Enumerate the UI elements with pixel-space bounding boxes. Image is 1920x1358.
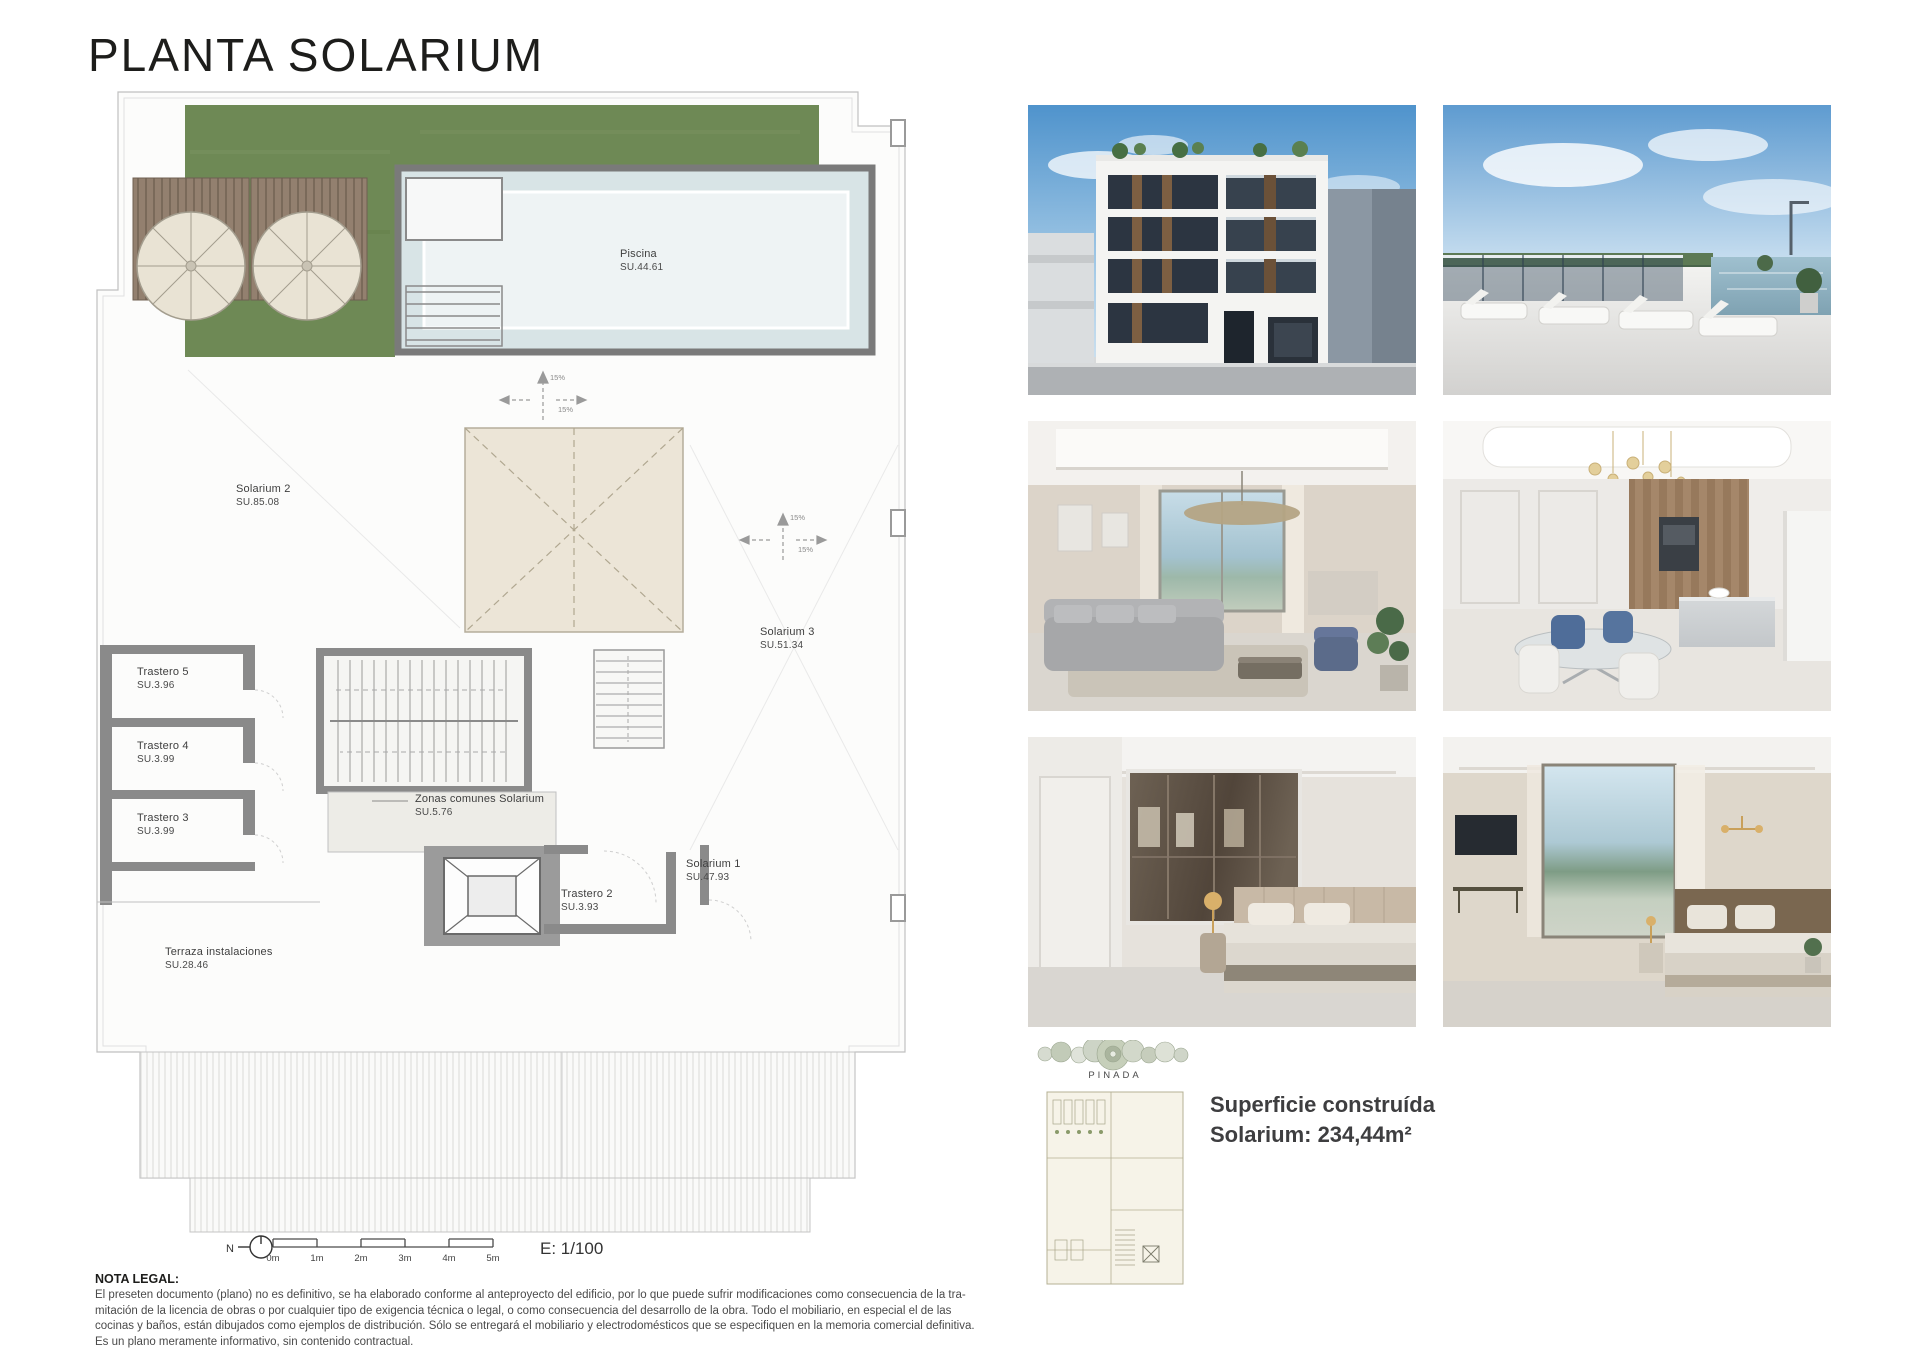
skylight [465,428,683,632]
slope-label: 15% [790,513,805,522]
room-label-solarium-1: Solarium 1SU.47.93 [686,858,741,884]
photo-bedroom-window [1443,737,1831,1027]
photo-bedroom-wardrobe [1028,737,1416,1027]
scale-tick: 1m [310,1253,323,1264]
floor-plan-drawing: 15% 15% 15% 15% [85,80,920,1270]
north-compass-icon: N [226,1236,272,1258]
room-label-zonas-comunes: Zonas comunes SolariumSU.5.76 [415,793,544,819]
room-label-terraza: Terraza instalacionesSU.28.46 [165,946,273,972]
room-label-trastero-5: Trastero 5SU.3.96 [137,666,189,692]
photo-rooftop-pool-terrace [1443,105,1831,395]
room-label-solarium-2: Solarium 2SU.85.08 [236,483,291,509]
room-label-trastero-2: Trastero 2SU.3.93 [561,888,613,914]
elevator [424,846,560,946]
room-label-piscina: PiscinaSU.44.61 [620,248,663,274]
scale-bar: 0m 1m 2m 3m 4m 5m E: 1/100 [266,1239,603,1264]
scale-tick: 5m [486,1253,499,1264]
slope-label: 15% [798,545,813,554]
umbrella-icon [137,212,245,320]
secondary-stair [594,650,664,748]
legal-note-body: El preseten documento (plano) no es defi… [95,1288,1045,1350]
slope-label: 15% [558,405,573,414]
site-plan-label: PINADA [1035,1070,1195,1081]
page-title: PLANTA SOLARIUM [88,28,544,82]
scale-tick: 4m [442,1253,455,1264]
photo-dining-kitchen [1443,421,1831,711]
legal-note-heading: NOTA LEGAL: [95,1272,1045,1286]
slope-label: 15% [550,373,565,382]
summary-line-2: Solarium: 234,44m² [1210,1120,1435,1150]
staircase-core [320,652,528,790]
pinada-trees-icon [1038,1040,1188,1070]
summary-line-1: Superficie construída [1210,1090,1435,1120]
north-label: N [226,1243,234,1255]
umbrella-icon [253,212,361,320]
room-label-solarium-3: Solarium 3SU.51.34 [760,626,815,652]
room-label-trastero-4: Trastero 4SU.3.99 [137,740,189,766]
photo-living-room [1028,421,1416,711]
legal-note: NOTA LEGAL: El preseten documento (plano… [95,1272,1045,1350]
photo-building-exterior [1028,105,1416,395]
scale-tick: 2m [354,1253,367,1264]
room-label-trastero-3: Trastero 3SU.3.99 [137,812,189,838]
built-area-summary: Superficie construída Solarium: 234,44m² [1210,1090,1435,1150]
scale-ratio: E: 1/100 [540,1239,603,1258]
brochure-page: PLANTA SOLARIUM [0,0,1920,1358]
scale-tick: 3m [398,1253,411,1264]
scale-tick: 0m [266,1253,279,1264]
